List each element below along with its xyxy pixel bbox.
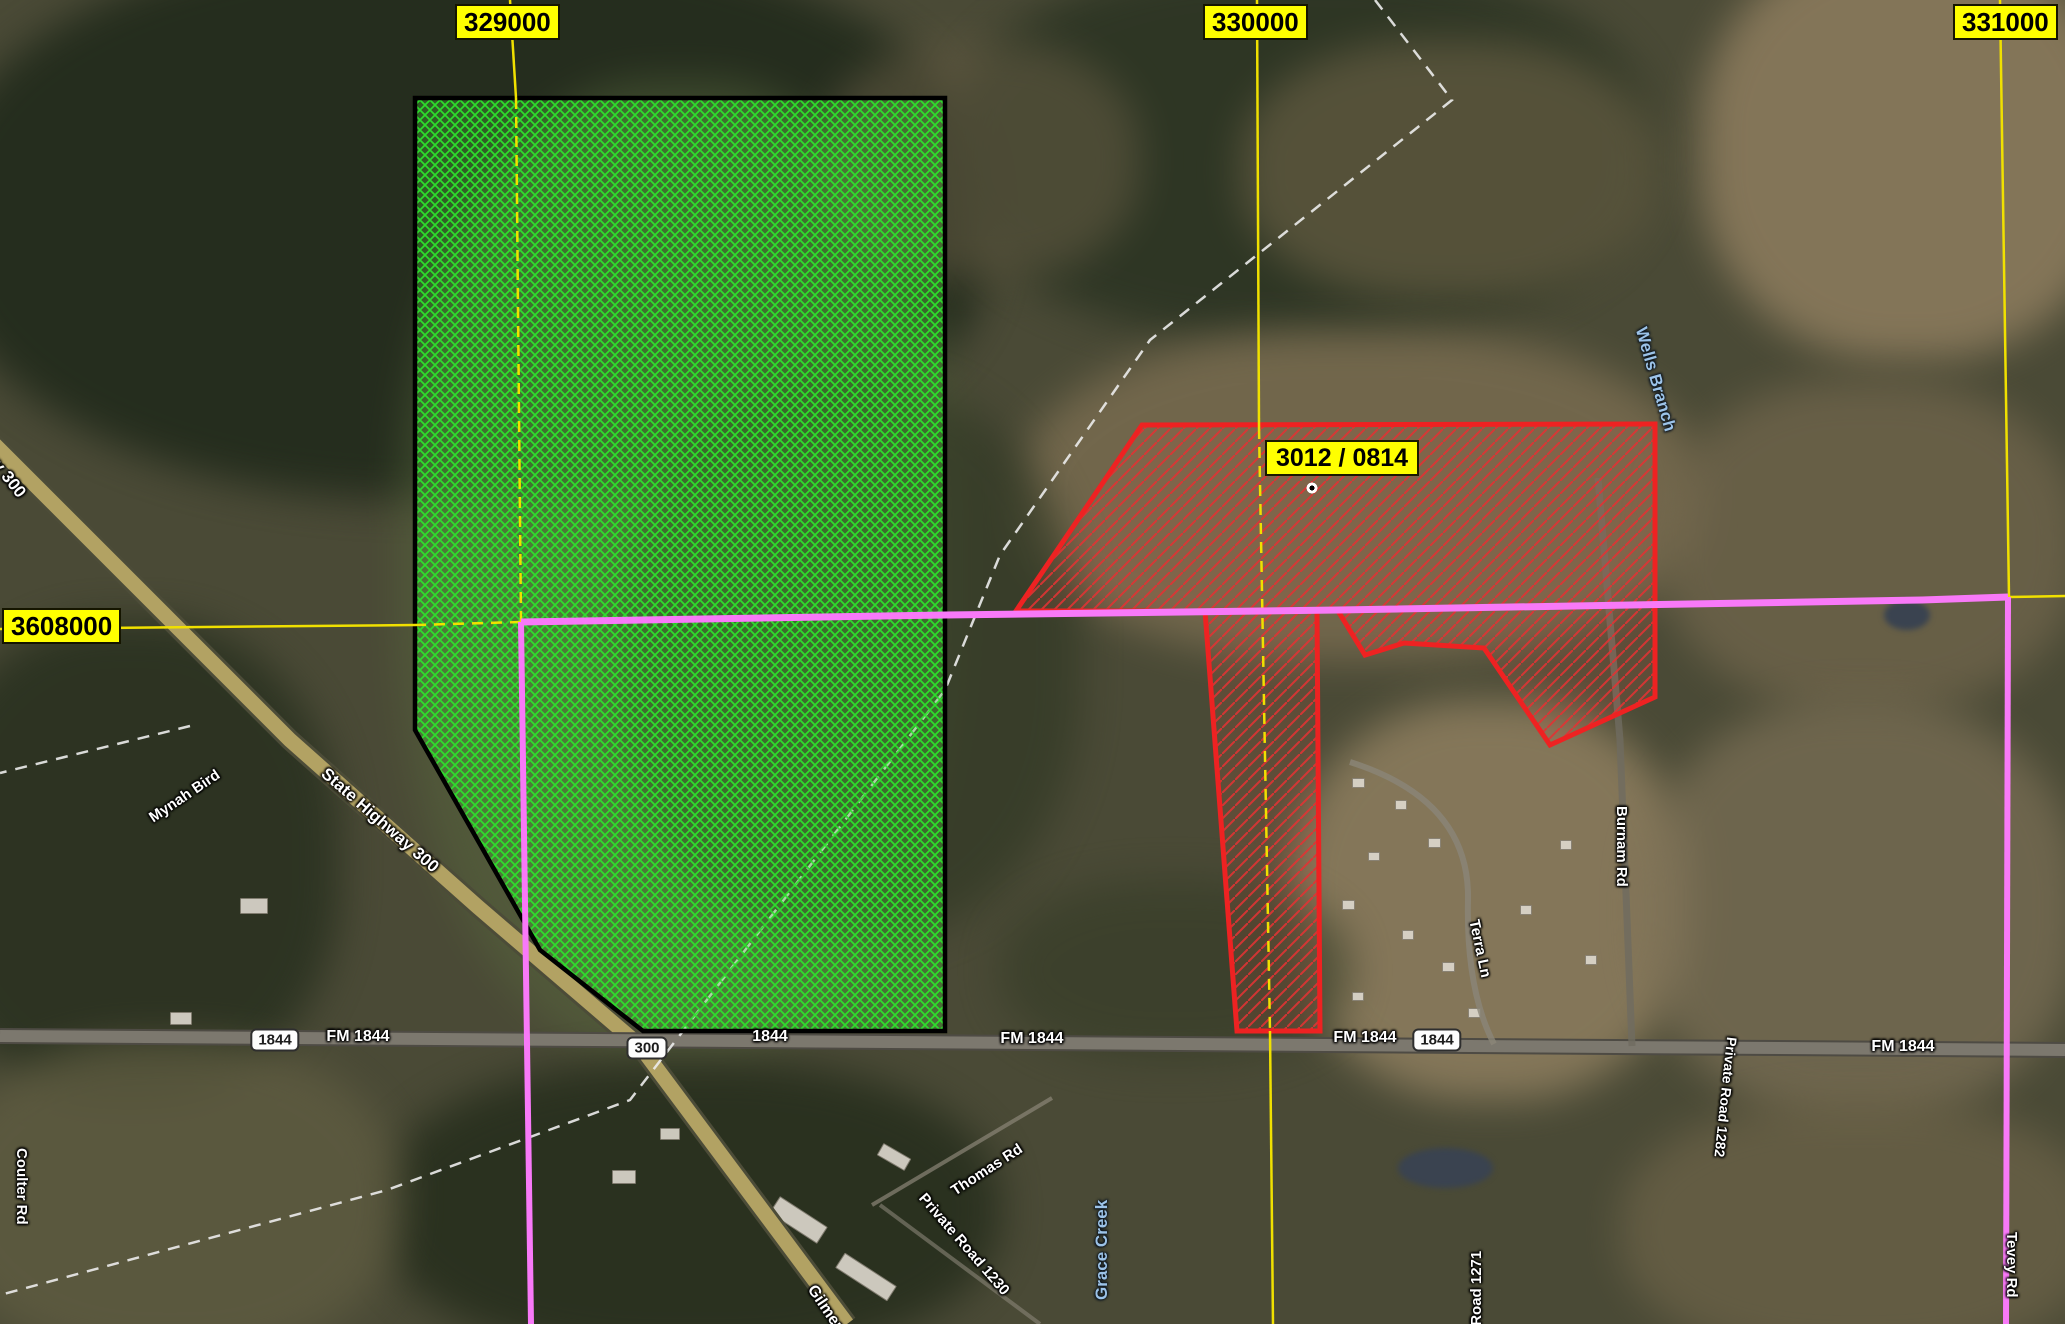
red-parcel-id-label[interactable]: 3012 / 0814 [1265, 440, 1419, 476]
parcel-point-marker[interactable] [1307, 483, 1318, 494]
road-terra-ln [1350, 762, 1494, 1044]
route-shield-300: 300 [626, 1037, 667, 1060]
map-viewport[interactable]: 329000 330000 331000 3608000 3012 / 0814… [0, 0, 2065, 1324]
grid-lines [0, 0, 2065, 1324]
green-parcel-polygon[interactable] [415, 98, 945, 1031]
grid-label-3608000: 3608000 [2, 608, 121, 644]
road-private-road-1230 [880, 1205, 1040, 1324]
road-fm-1844 [0, 1036, 2065, 1050]
route-shield-1844-west: 1844 [250, 1029, 299, 1052]
red-parcel-polygon[interactable] [1016, 424, 1655, 1031]
route-shield-1844-east: 1844 [1412, 1029, 1461, 1052]
survey-dashed-line [0, 726, 190, 773]
grid-label-329000: 329000 [455, 4, 560, 40]
road-thomas-rd [872, 1098, 1052, 1205]
map-vector-layers [0, 0, 2065, 1324]
grid-label-330000: 330000 [1203, 4, 1308, 40]
grid-label-331000: 331000 [1953, 4, 2058, 40]
